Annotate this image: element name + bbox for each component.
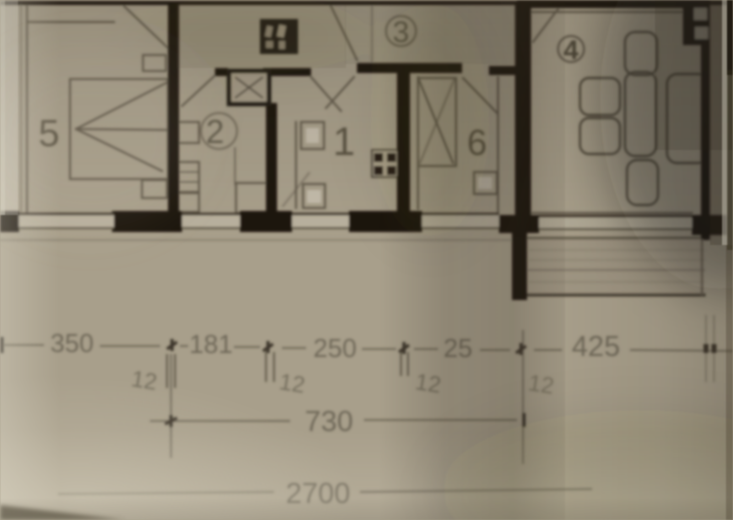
svg-text:12: 12 [278,368,307,398]
svg-text:181: 181 [189,329,232,359]
svg-text:250: 250 [313,333,356,363]
